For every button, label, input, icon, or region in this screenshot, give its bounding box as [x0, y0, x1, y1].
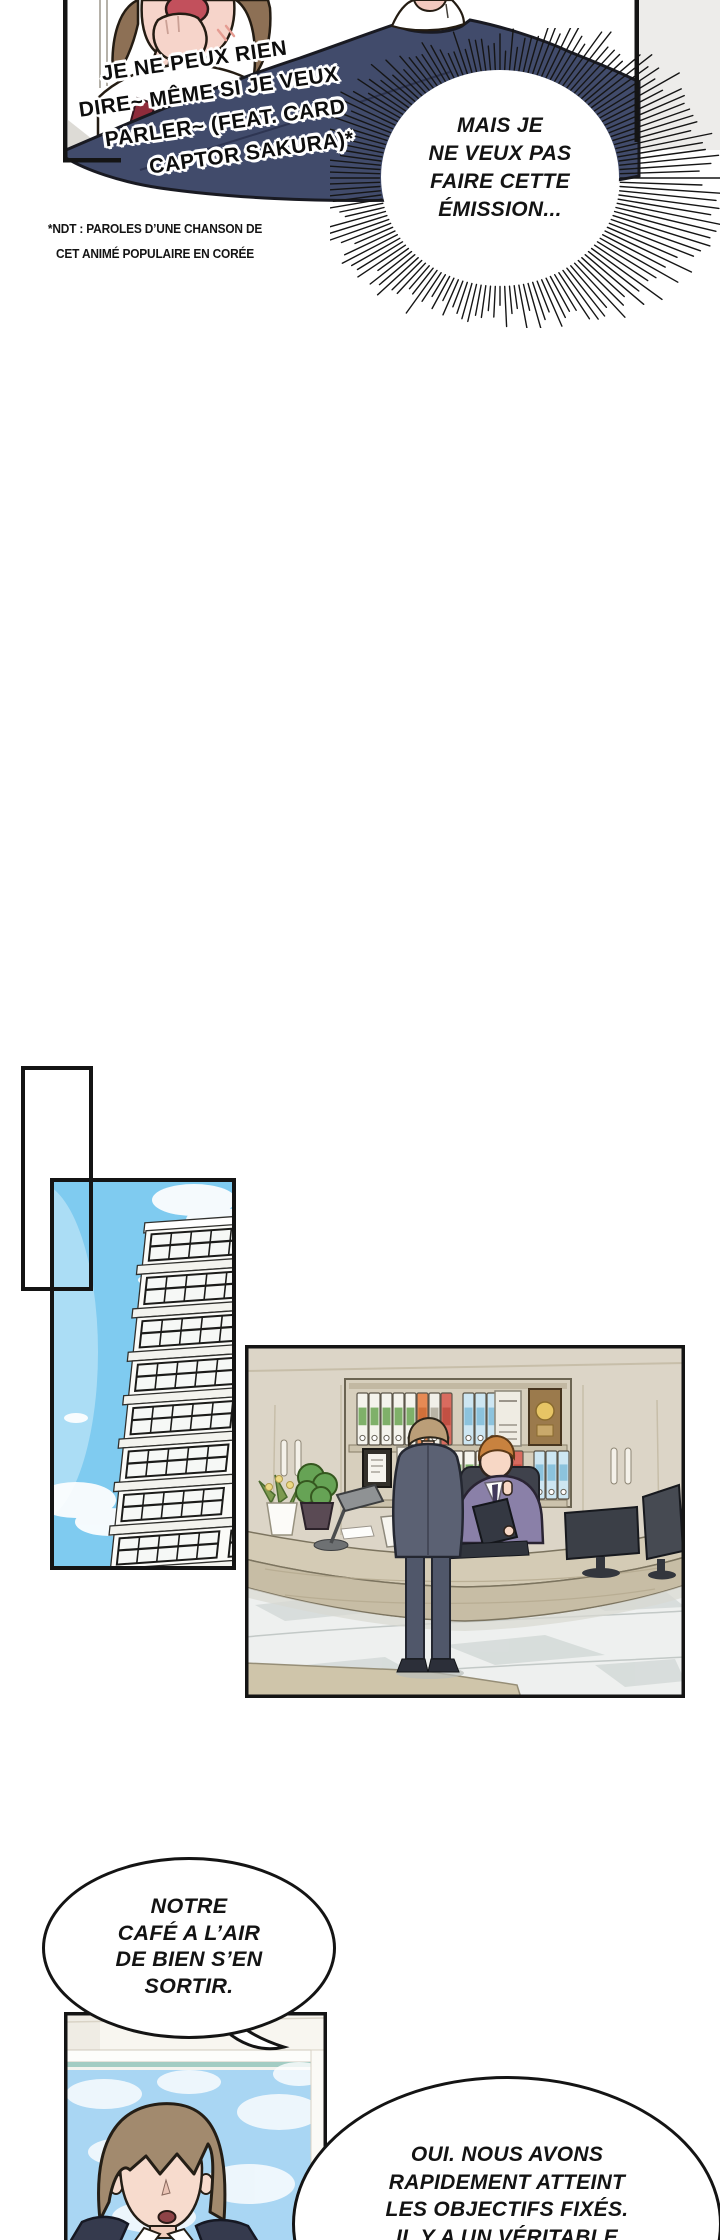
bubble-line: CAFÉ A L’AIR — [45, 1920, 333, 1947]
translator-note: *NDT : PAROLES D’UNE CHANSON DE CET ANIM… — [36, 216, 274, 266]
bubble-line: SORTIR. — [45, 1973, 333, 2000]
open-mouth — [159, 2211, 176, 2223]
bubble-line: IL Y A UN VÉRITABLE — [295, 2224, 719, 2240]
bubble-line: ÉMISSION... — [381, 196, 619, 224]
speech-burst-bubble: MAIS JE NE VEUX PAS FAIRE CETTE ÉMISSION… — [381, 70, 619, 284]
speech-bubble-reply: OUI. NOUS AVONS RAPIDEMENT ATTEINT LES O… — [292, 2076, 720, 2240]
bubble-line: DE BIEN S’EN — [45, 1946, 333, 1973]
speech-bubble-cafe: NOTRE CAFÉ A L’AIR DE BIEN S’EN SORTIR. — [42, 1857, 336, 2039]
reply-bubble-text: OUI. NOUS AVONS RAPIDEMENT ATTEINT LES O… — [295, 2079, 719, 2240]
bubble-line: RAPIDEMENT ATTEINT — [295, 2169, 719, 2197]
cafe-bubble-text: NOTRE CAFÉ A L’AIR DE BIEN S’EN SORTIR. — [45, 1860, 333, 1999]
comic-page: MAIS JE NE VEUX PAS FAIRE CETTE ÉMISSION… — [0, 0, 720, 2240]
bubble-line: FAIRE CETTE — [381, 168, 619, 196]
panel-office — [245, 1345, 685, 1698]
note-line: CET ANIMÉ POPULAIRE EN CORÉE — [36, 241, 274, 266]
bubble-line: NOTRE — [45, 1893, 333, 1920]
panel-empty — [21, 1066, 93, 1291]
burst-bubble-text: MAIS JE NE VEUX PAS FAIRE CETTE ÉMISSION… — [381, 70, 619, 224]
bubble-line: OUI. NOUS AVONS — [295, 2141, 719, 2169]
bubble-line: LES OBJECTIFS FIXÉS. — [295, 2196, 719, 2224]
note-line: *NDT : PAROLES D’UNE CHANSON DE — [36, 216, 274, 241]
